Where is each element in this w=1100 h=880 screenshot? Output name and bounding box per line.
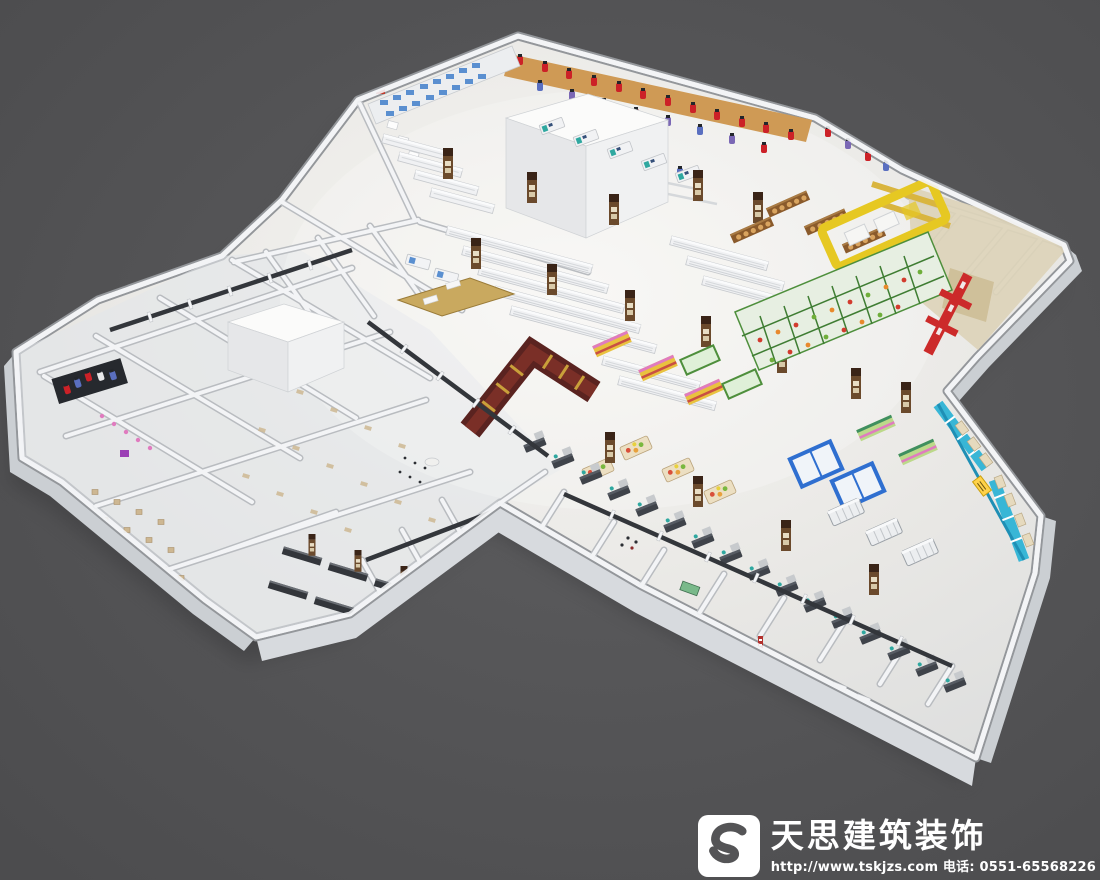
- company-logo: [698, 815, 760, 877]
- contact-url: http://www.tskjzs.com 电话: 0551-65568226: [771, 856, 1096, 875]
- render-canvas: 天思建筑装饰 http://www.tskjzs.com 电话: 0551-65…: [0, 0, 1100, 880]
- watermark: 天思建筑装饰 http://www.tskjzs.com 电话: 0551-65…: [698, 815, 1098, 877]
- floorplan-render: [0, 0, 1100, 880]
- company-name: 天思建筑装饰: [771, 817, 1096, 855]
- purple-bag: [120, 450, 129, 457]
- logo-s-icon: [704, 821, 754, 871]
- watermark-text: 天思建筑装饰 http://www.tskjzs.com 电话: 0551-65…: [771, 817, 1098, 875]
